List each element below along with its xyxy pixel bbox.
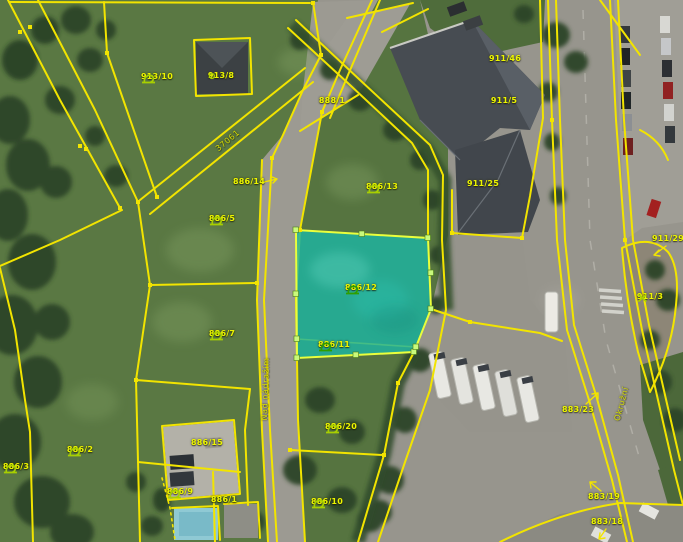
map-viewport[interactable]: 913/10913/8888/1886/14886/13886/5911/259… (0, 0, 683, 542)
selected-parcel[interactable] (296, 230, 431, 358)
aerial-map-canvas (0, 0, 683, 542)
